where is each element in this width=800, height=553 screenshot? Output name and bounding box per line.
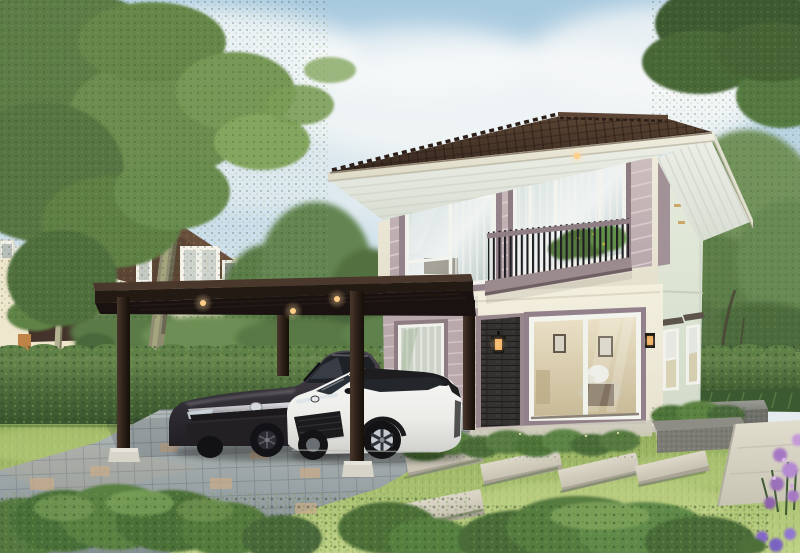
brick-column xyxy=(476,313,524,431)
carport-post-rear-right xyxy=(463,300,475,430)
carport-post-front-left xyxy=(117,297,130,450)
sliding-door xyxy=(524,307,646,426)
carport-post-front-right xyxy=(350,291,364,463)
front-right-lantern xyxy=(643,333,657,348)
left-tree-foliage xyxy=(0,0,356,326)
exterior-render xyxy=(0,0,800,553)
carport-post-rear-left xyxy=(277,310,289,376)
sedan-wheel xyxy=(250,423,284,457)
scene-canvas xyxy=(0,0,800,553)
